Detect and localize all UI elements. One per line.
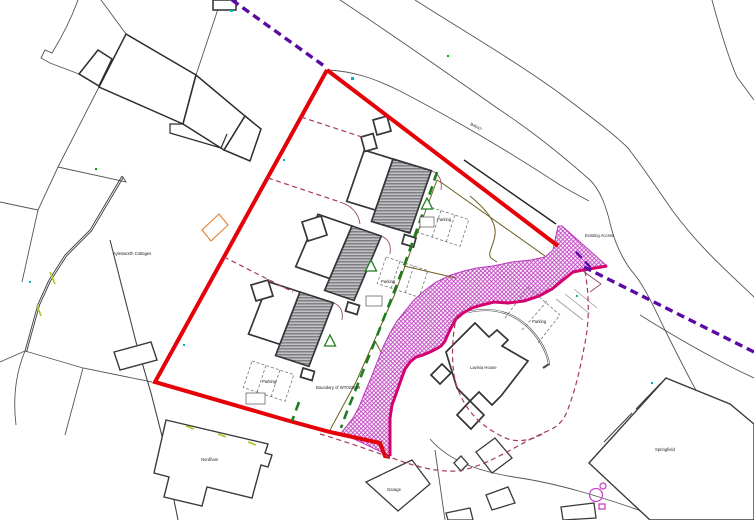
svg-text:Parking: Parking (437, 217, 452, 222)
svg-text:Parking: Parking (381, 279, 396, 284)
svg-text:Lavinia House: Lavinia House (470, 365, 497, 370)
svg-text:Springfield: Springfield (655, 447, 675, 452)
svg-text:Boundary of WT022649: Boundary of WT022649 (316, 385, 361, 390)
svg-text:Existing Access: Existing Access (585, 233, 614, 238)
svg-text:Garage: Garage (387, 487, 402, 492)
svg-text:Parking: Parking (262, 379, 277, 384)
svg-text:Parking: Parking (532, 319, 547, 324)
svg-text:Nordham: Nordham (201, 457, 219, 462)
svg-text:Aylesworth Cottages: Aylesworth Cottages (113, 251, 151, 256)
